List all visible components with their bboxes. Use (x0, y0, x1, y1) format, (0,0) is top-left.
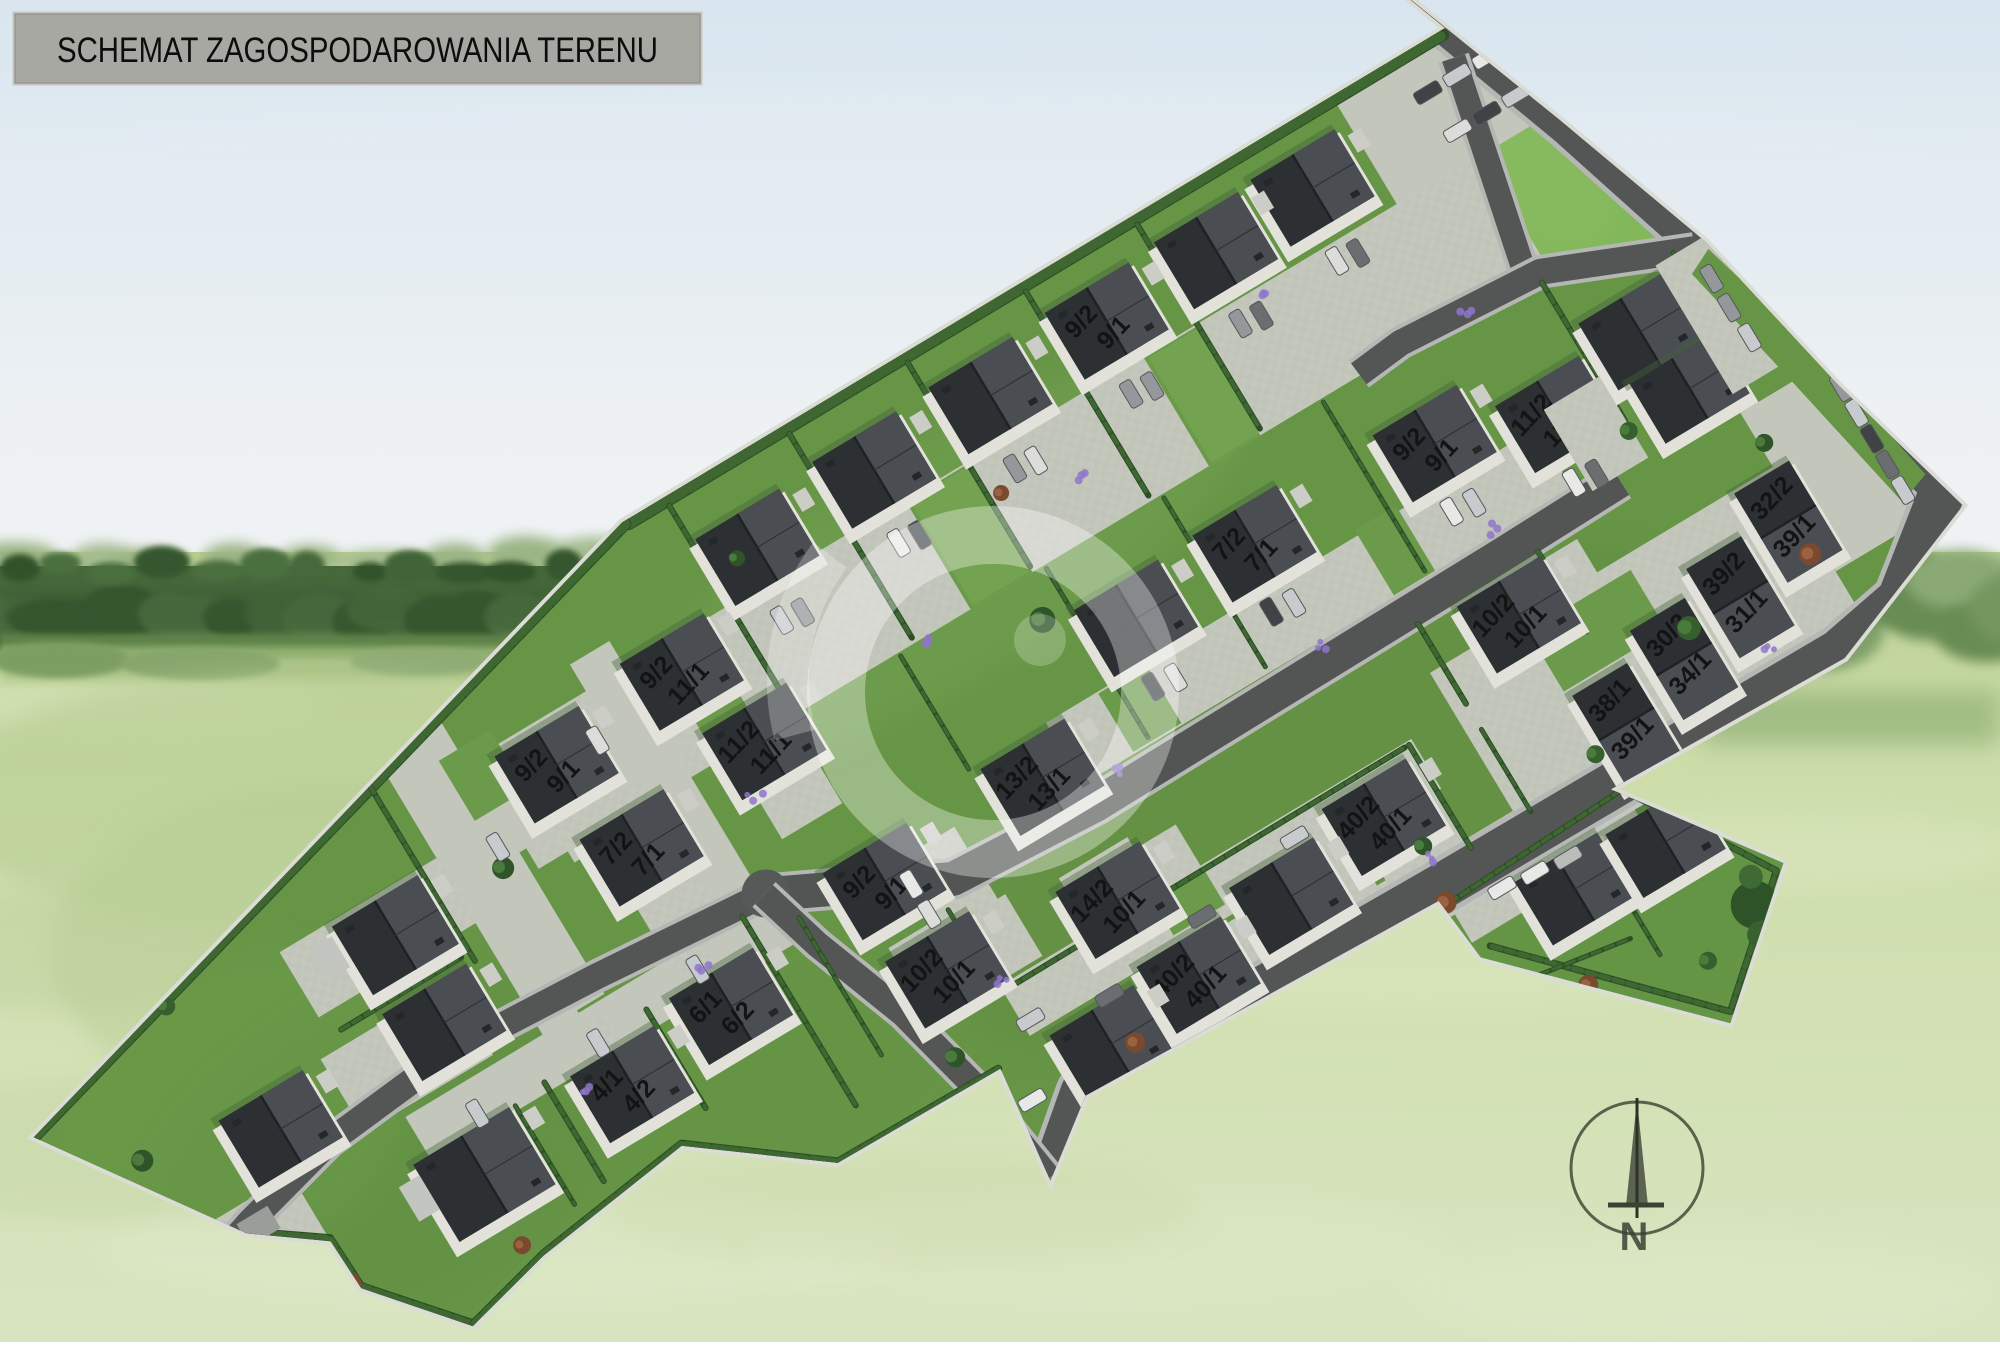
svg-text:N: N (1620, 1215, 1649, 1259)
svg-text:SCHEMAT ZAGOSPODAROWANIA TEREN: SCHEMAT ZAGOSPODAROWANIA TERENU (57, 31, 658, 70)
